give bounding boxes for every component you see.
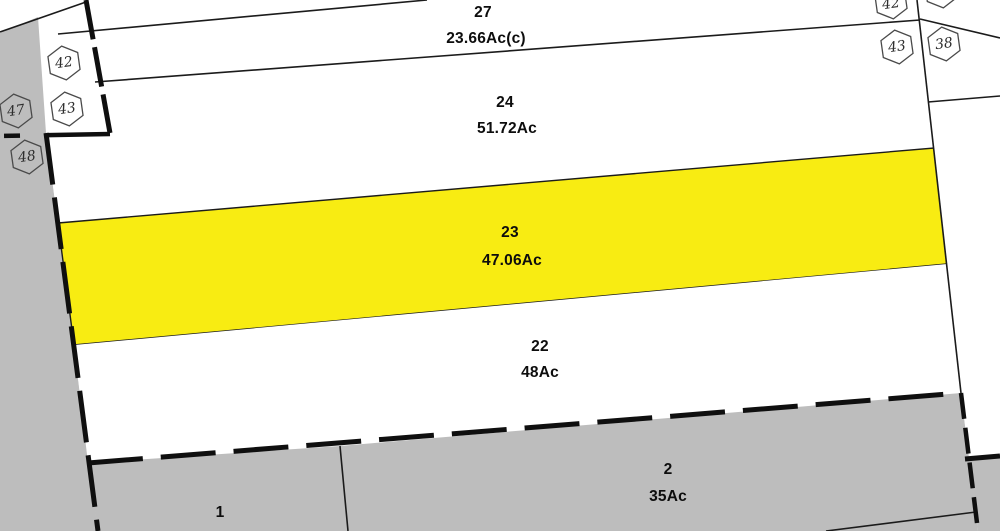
parcel-22-acreage: 48Ac bbox=[521, 364, 559, 382]
map-canvas: 27 23.66Ac(c) 24 51.72Ac 23 47.06Ac 22 4… bbox=[0, 0, 1000, 531]
east-boundary-stub bbox=[965, 456, 1000, 459]
badge-38-label: 38 bbox=[934, 35, 954, 53]
west-boundary-jog bbox=[0, 134, 110, 136]
badge-43-left-label: 43 bbox=[57, 100, 77, 118]
parcel-27-number: 27 bbox=[474, 4, 492, 22]
parcel-1-number: 1 bbox=[216, 504, 225, 522]
parcel-24-number: 24 bbox=[496, 94, 514, 112]
parcel-22-number: 22 bbox=[531, 338, 549, 356]
parcel-23-acreage: 47.06Ac bbox=[482, 252, 542, 270]
parcel-27-acreage: 23.66Ac(c) bbox=[446, 30, 526, 48]
parcel-2-acreage: 35Ac bbox=[649, 488, 687, 506]
badge-43-right-label: 43 bbox=[887, 38, 907, 56]
parcel-2-number: 2 bbox=[664, 461, 673, 479]
badge-42-left-label: 42 bbox=[54, 54, 74, 72]
boundary-line-topleft bbox=[0, 2, 86, 32]
parcel-24-acreage: 51.72Ac bbox=[477, 120, 537, 138]
badge-47-label: 47 bbox=[6, 102, 26, 120]
badge-48-label: 48 bbox=[17, 148, 37, 166]
parcel-23-number: 23 bbox=[501, 224, 519, 242]
